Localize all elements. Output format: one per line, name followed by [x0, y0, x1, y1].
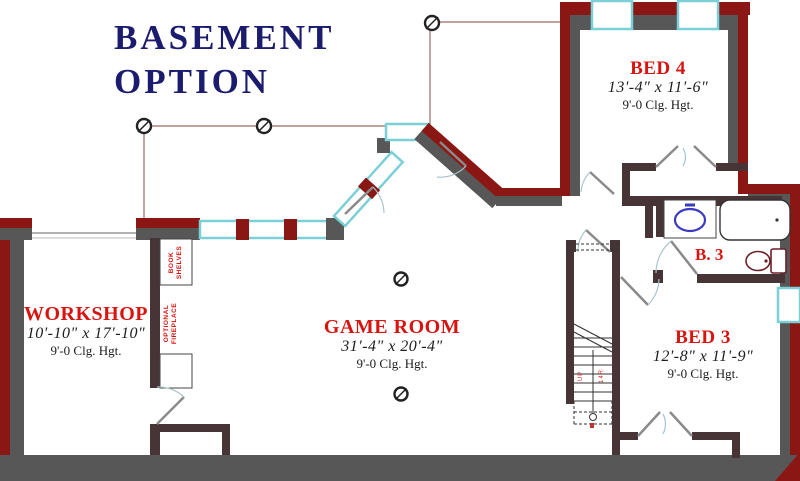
plan-title: BASEMENT OPTION — [114, 16, 334, 104]
stair-mark-risers: 14R — [596, 356, 608, 396]
window-bed3 — [778, 288, 800, 322]
room-dimensions: 13'-4" x 11'-6" — [578, 79, 738, 97]
optional-fireplace-label: OPTIONAL FIREPLACE — [150, 294, 192, 352]
window-band-game-room — [200, 221, 328, 238]
room-label-bed4: BED 4 13'-4" x 11'-6" 9'-0 Clg. Hgt. — [578, 58, 738, 113]
bay-window-angled — [333, 151, 405, 228]
room-dimensions: 31'-4" x 20'-4" — [308, 338, 476, 356]
room-name: BED 3 — [628, 327, 778, 348]
bifold-bed4-left — [656, 146, 678, 167]
room-name: BED 4 — [578, 58, 738, 79]
tub-drain — [775, 218, 778, 221]
column-icon — [395, 273, 408, 286]
room-ceiling-height: 9'-0 Clg. Hgt. — [308, 356, 476, 372]
bifold-bed3-right — [670, 412, 692, 436]
plan-title-line1: BASEMENT — [114, 16, 334, 60]
door-leaf-workshop — [157, 397, 184, 424]
column-icon — [425, 16, 439, 30]
doors — [157, 142, 716, 436]
room-label-game-room: GAME ROOM 31'-4" x 20'-4" 9'-0 Clg. Hgt. — [308, 317, 476, 372]
stair-mark-up: UP — [575, 356, 587, 396]
room-name: GAME ROOM — [308, 317, 476, 338]
fireplace-unit — [160, 354, 192, 388]
staircase — [566, 244, 620, 428]
door-leaf-stairs — [586, 230, 610, 252]
room-label-bath3: B. 3 — [695, 245, 723, 265]
bifold-bed3-left — [638, 412, 660, 436]
room-label-workshop: WORKSHOP 10'-10" x 17'-10" 9'-0 Clg. Hgt… — [8, 304, 164, 359]
window-bed4-right — [678, 1, 718, 29]
bifold-bed4-right — [694, 146, 716, 167]
room-label-bed3: BED 3 12'-8" x 11'-9" 9'-0 Clg. Hgt. — [628, 327, 778, 382]
door-leaf-bed3 — [621, 277, 648, 305]
room-dimensions: 10'-10" x 17'-10" — [8, 325, 164, 343]
plan-title-line2: OPTION — [114, 60, 334, 104]
column-icon — [395, 388, 408, 401]
bathroom-fixtures — [664, 200, 790, 273]
room-ceiling-height: 9'-0 Clg. Hgt. — [578, 97, 738, 113]
room-dimensions: 12'-8" x 11'-9" — [628, 348, 778, 366]
bookshelves-label: BOOK SHELVES — [158, 238, 194, 286]
toilet-tank-icon — [771, 249, 786, 273]
door-leaf-bed4 — [590, 172, 614, 194]
door-leaf-bath — [671, 241, 697, 274]
room-ceiling-height: 9'-0 Clg. Hgt. — [628, 366, 778, 382]
bathtub-icon — [720, 200, 790, 240]
column-icon — [257, 119, 271, 133]
room-ceiling-height: 9'-0 Clg. Hgt. — [8, 343, 164, 359]
window-bed4-left — [592, 1, 632, 29]
room-name: WORKSHOP — [8, 304, 164, 325]
basement-floor-plan: BASEMENT OPTION WORKSHOP 10'-10" x 17'-1… — [0, 0, 800, 481]
column-icon — [137, 119, 151, 133]
